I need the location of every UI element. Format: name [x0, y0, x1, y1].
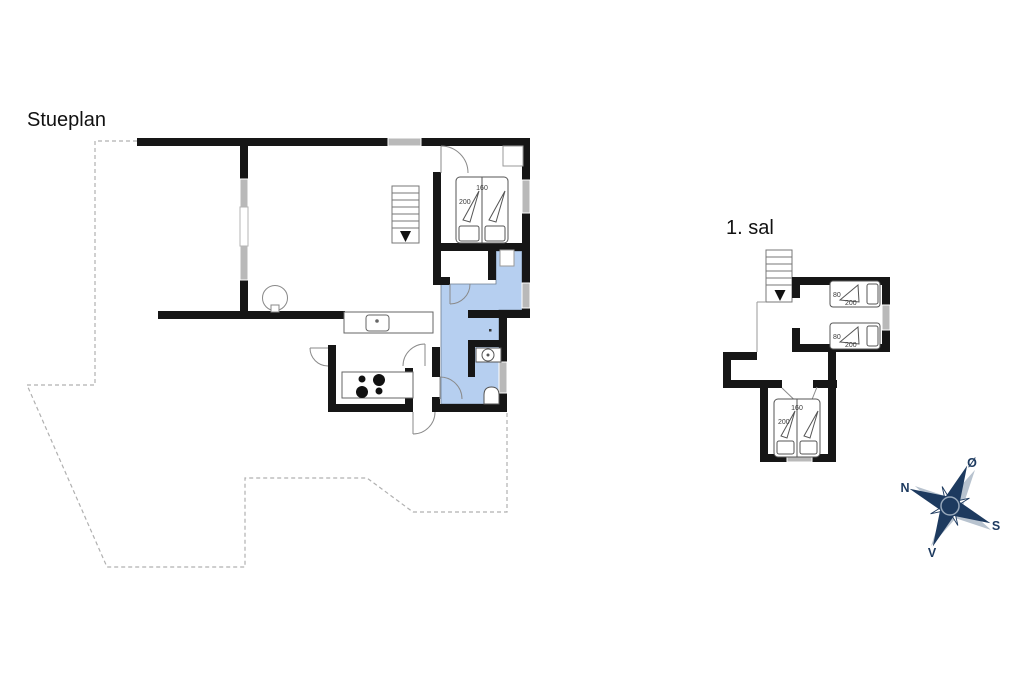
floorplan-drawing: Stueplan 1. sal: [0, 0, 1024, 682]
pillow-icon: [777, 441, 794, 454]
floorplan-page: Stueplan 1. sal: [0, 0, 1024, 682]
door-arc: [441, 146, 468, 173]
landing-outline: [757, 302, 766, 352]
compass-rose: N Ø S V: [892, 448, 1013, 568]
window-icon: [499, 362, 507, 393]
compass-west-label: V: [928, 546, 937, 560]
stove-icon: [342, 372, 413, 398]
compass-center: [944, 500, 957, 513]
bed-length-label: 200: [845, 300, 857, 307]
bed-width-label: 80: [833, 292, 841, 299]
window-icon: [882, 305, 890, 330]
window-icon: [388, 138, 421, 146]
ground-floor-title: Stueplan: [27, 109, 106, 131]
window-icon: [522, 283, 530, 308]
first-floor-plan: 80 200 80 200 160 200: [723, 250, 890, 462]
bed-length-label: 200: [845, 342, 857, 349]
pillow-icon: [459, 226, 479, 241]
window-icon: [240, 179, 248, 207]
stairs-icon: [392, 186, 419, 243]
pillow-icon: [867, 326, 878, 346]
compass-south-label: S: [992, 519, 1000, 533]
bed-width-label: 160: [476, 185, 488, 192]
closet-icon: [503, 146, 523, 166]
kitchen-sink-icon: [344, 312, 433, 333]
door-arc: [403, 344, 425, 366]
compass-north-label: N: [900, 481, 909, 495]
bed-length-label: 200: [778, 419, 790, 426]
toilet-icon: [484, 387, 499, 404]
pillow-icon: [485, 226, 505, 241]
compass-east-label: Ø: [967, 456, 977, 470]
window-icon: [240, 246, 248, 280]
window-icon: [522, 180, 530, 213]
bath-sink-icon: [476, 348, 501, 362]
bed-length-label: 200: [459, 199, 471, 206]
bed-width-label: 80: [833, 334, 841, 341]
first-floor-title: 1. sal: [726, 217, 774, 239]
door-arc: [310, 348, 328, 366]
pillow-icon: [800, 441, 817, 454]
entrance-door-arc: [413, 412, 435, 434]
bed-width-label: 160: [791, 405, 803, 412]
drain-dot: [489, 329, 492, 332]
ground-floor-plan: 160 200: [137, 138, 530, 434]
stairs-icon: [766, 250, 792, 302]
wood-stove-icon: [263, 286, 288, 313]
terrace-door: [240, 207, 248, 246]
closet-icon: [500, 250, 514, 266]
pillow-icon: [867, 284, 878, 304]
